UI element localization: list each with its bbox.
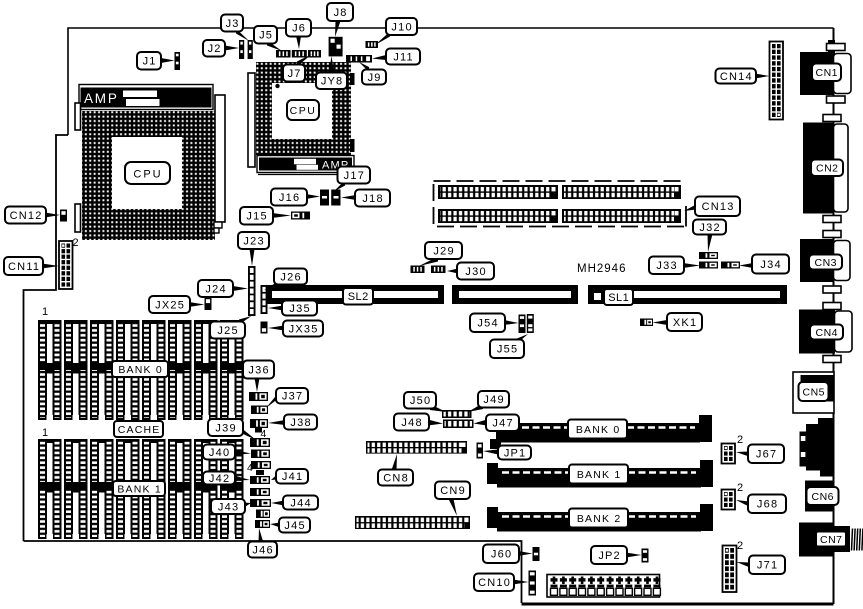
svg-text:J15: J15: [246, 211, 267, 223]
svg-text:JX35: JX35: [289, 323, 319, 335]
svg-text:MH2946: MH2946: [577, 263, 626, 275]
svg-text:J7: J7: [288, 68, 302, 80]
svg-text:J67: J67: [756, 449, 777, 461]
svg-text:J29: J29: [433, 245, 454, 257]
svg-text:J2: J2: [208, 43, 222, 55]
svg-text:J49: J49: [483, 394, 504, 406]
svg-text:J16: J16: [279, 192, 300, 204]
svg-text:J24: J24: [205, 283, 226, 295]
svg-text:JP2: JP2: [598, 550, 621, 562]
svg-text:J33: J33: [656, 260, 677, 272]
svg-text:CN4: CN4: [815, 327, 838, 339]
svg-text:J9: J9: [368, 72, 382, 84]
svg-text:CPU: CPU: [290, 105, 317, 117]
svg-text:CN13: CN13: [702, 201, 735, 213]
svg-text:JX25: JX25: [155, 299, 185, 311]
svg-text:CN7: CN7: [820, 534, 843, 546]
svg-text:J26: J26: [280, 271, 301, 283]
svg-text:SL1: SL1: [608, 292, 629, 304]
svg-text:BANK 0: BANK 0: [576, 424, 621, 436]
svg-text:2: 2: [73, 237, 79, 249]
svg-text:J50: J50: [410, 395, 431, 407]
svg-text:J32: J32: [699, 222, 720, 234]
svg-text:J48: J48: [401, 417, 422, 429]
svg-text:BANK 2: BANK 2: [577, 513, 622, 525]
svg-text:CACHE: CACHE: [118, 424, 161, 436]
svg-text:J1: J1: [143, 56, 157, 68]
svg-text:JP1: JP1: [504, 447, 527, 459]
svg-text:2: 2: [737, 434, 743, 446]
svg-text:CN3: CN3: [814, 257, 837, 269]
svg-text:J8: J8: [334, 7, 348, 19]
svg-text:AMP: AMP: [84, 91, 119, 106]
svg-text:2: 2: [737, 540, 743, 552]
svg-text:CN6: CN6: [811, 491, 834, 503]
svg-text:J41: J41: [282, 471, 303, 483]
svg-text:4: 4: [247, 462, 253, 474]
svg-text:CN10: CN10: [478, 577, 511, 589]
svg-text:J5: J5: [259, 30, 273, 42]
svg-text:J23: J23: [243, 235, 264, 247]
svg-text:J71: J71: [757, 560, 778, 572]
svg-text:J6: J6: [292, 23, 306, 35]
svg-text:CN11: CN11: [8, 261, 40, 273]
svg-text:J10: J10: [391, 21, 412, 33]
svg-text:CN14: CN14: [720, 71, 753, 83]
svg-text:J35: J35: [289, 303, 310, 315]
svg-text:BANK 1: BANK 1: [577, 469, 622, 481]
svg-text:BANK 1: BANK 1: [117, 483, 162, 495]
svg-text:J68: J68: [757, 499, 778, 511]
svg-text:J34: J34: [760, 259, 781, 271]
svg-text:J46: J46: [252, 544, 273, 556]
svg-text:CN1: CN1: [815, 67, 838, 79]
svg-text:J30: J30: [465, 266, 486, 278]
svg-text:CPU: CPU: [133, 169, 162, 181]
svg-text:BANK 0: BANK 0: [118, 364, 163, 376]
svg-text:J11: J11: [393, 51, 414, 63]
svg-text:1: 1: [42, 427, 48, 439]
svg-text:JY8: JY8: [321, 76, 344, 88]
svg-text:J18: J18: [362, 193, 383, 205]
svg-text:CN9: CN9: [440, 485, 466, 497]
svg-text:SL2: SL2: [348, 291, 369, 303]
svg-text:J55: J55: [497, 344, 518, 356]
svg-text:J17: J17: [344, 170, 365, 182]
svg-text:J47: J47: [492, 418, 513, 430]
svg-text:J60: J60: [491, 549, 512, 561]
svg-text:J45: J45: [284, 520, 305, 532]
svg-text:J38: J38: [290, 417, 311, 429]
svg-text:CN8: CN8: [383, 472, 409, 484]
svg-text:J54: J54: [477, 318, 498, 330]
svg-text:J39: J39: [215, 422, 236, 434]
svg-text:CN12: CN12: [10, 210, 43, 222]
svg-text:J37: J37: [282, 391, 303, 403]
svg-text:CN2: CN2: [816, 163, 839, 175]
svg-text:J25: J25: [217, 325, 238, 337]
svg-text:1: 1: [42, 306, 48, 318]
svg-text:CN5: CN5: [802, 386, 825, 398]
svg-text:J44: J44: [290, 497, 311, 509]
svg-text:J36: J36: [248, 364, 269, 376]
svg-text:J42: J42: [209, 473, 230, 485]
svg-text:J43: J43: [218, 501, 239, 513]
svg-text:J3: J3: [226, 18, 240, 30]
svg-text:4: 4: [261, 428, 267, 440]
svg-text:XK1: XK1: [673, 317, 697, 329]
svg-text:2: 2: [737, 482, 743, 494]
svg-text:J40: J40: [209, 447, 230, 459]
